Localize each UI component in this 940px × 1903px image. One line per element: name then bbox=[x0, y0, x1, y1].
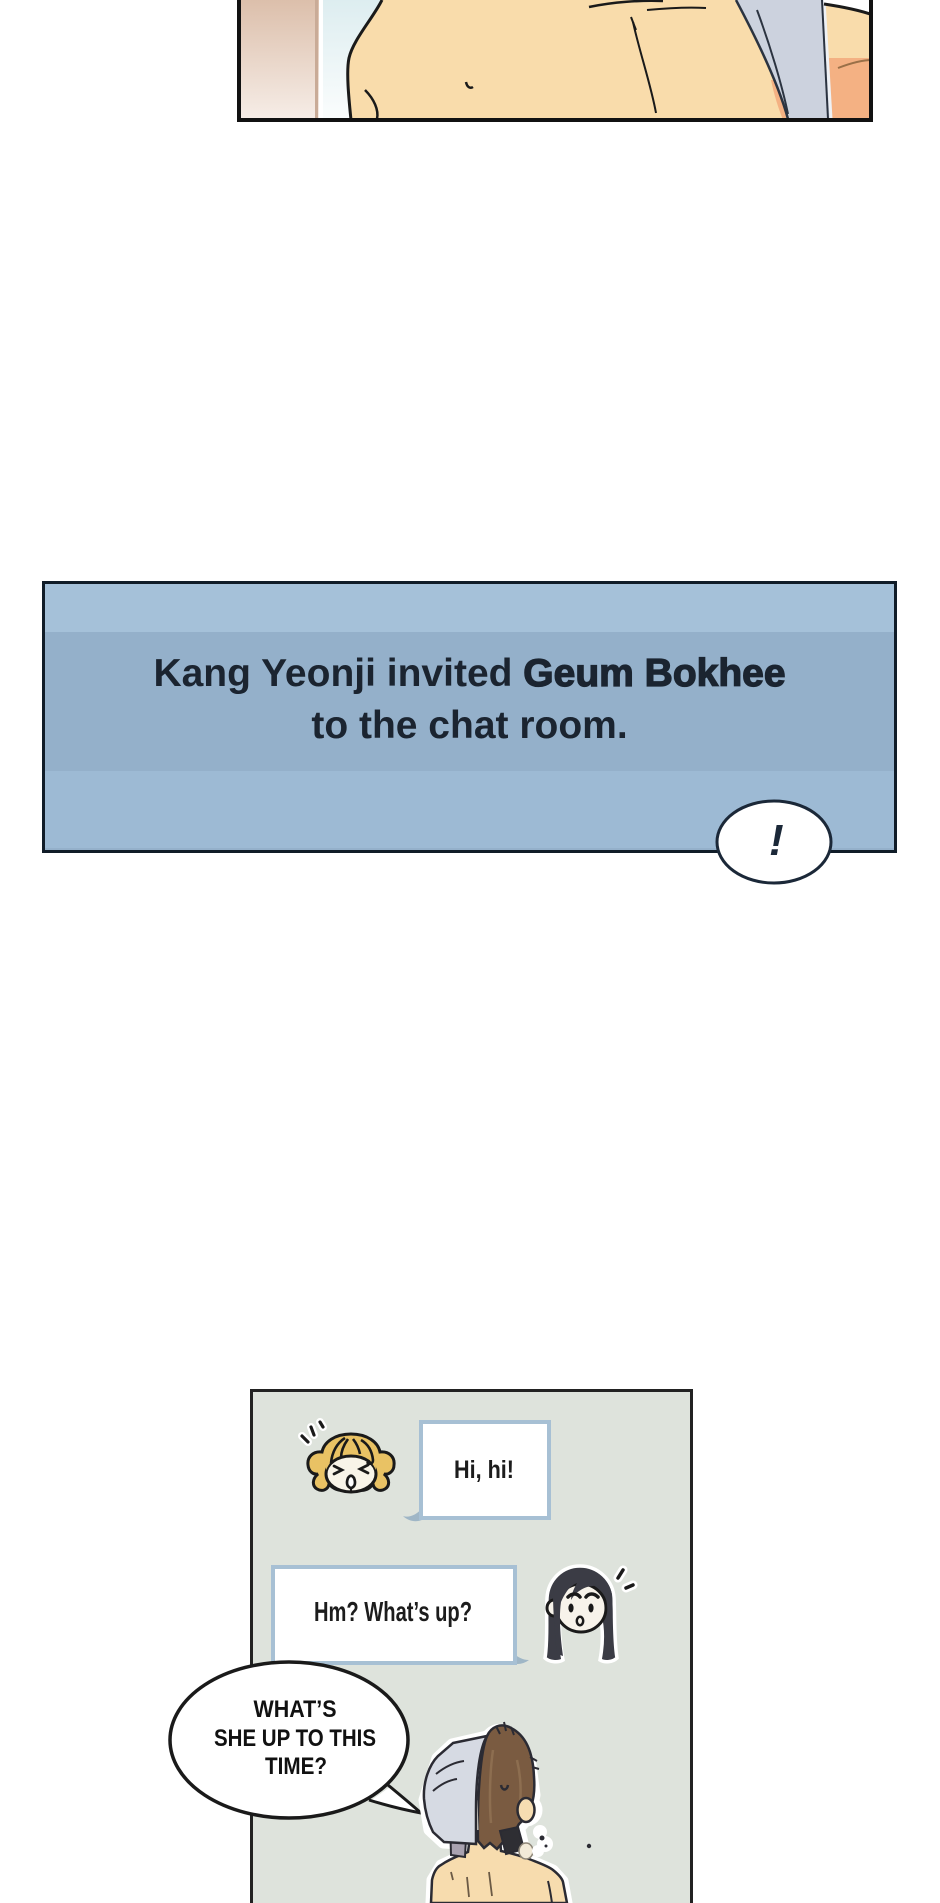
svg-text:SHE UP TO THIS: SHE UP TO THIS bbox=[214, 1725, 376, 1752]
svg-text:Hm? What’s up?: Hm? What’s up? bbox=[314, 1596, 472, 1627]
svg-text:Hi, hi!: Hi, hi! bbox=[454, 1456, 514, 1484]
svg-text:!: ! bbox=[769, 816, 784, 865]
svg-text:TIME?: TIME? bbox=[265, 1753, 327, 1780]
svg-text:WHAT’S: WHAT’S bbox=[254, 1696, 337, 1723]
